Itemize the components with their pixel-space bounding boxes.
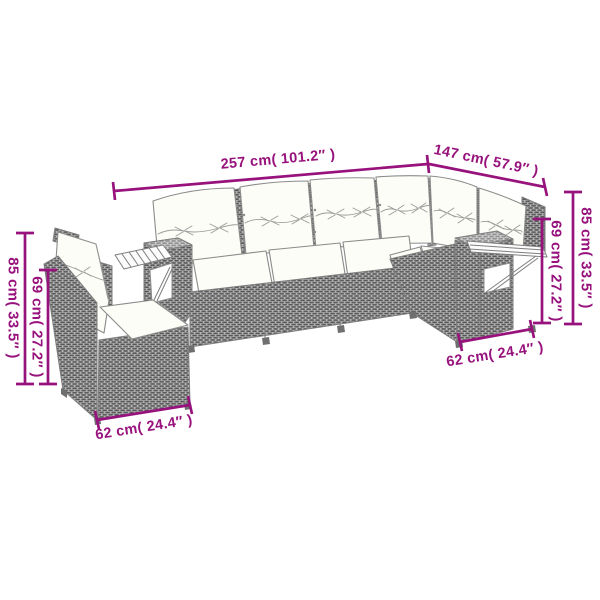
dim-label-back-height-right: 85 cm( 33.5″ ) — [579, 207, 594, 308]
dim-label-arm-height-right: 69 cm( 27.2″ ) — [549, 220, 564, 321]
dim-label-back-height-left: 85 cm( 33.5″ ) — [6, 257, 21, 358]
dim-label-arm-height-left: 69 cm( 27.2″ ) — [30, 276, 45, 377]
dimension-diagram: 257 cm( 101.2″ ) 147 cm( 57.9″ ) 85 cm( … — [0, 0, 600, 600]
sofa-illustration — [0, 0, 600, 600]
